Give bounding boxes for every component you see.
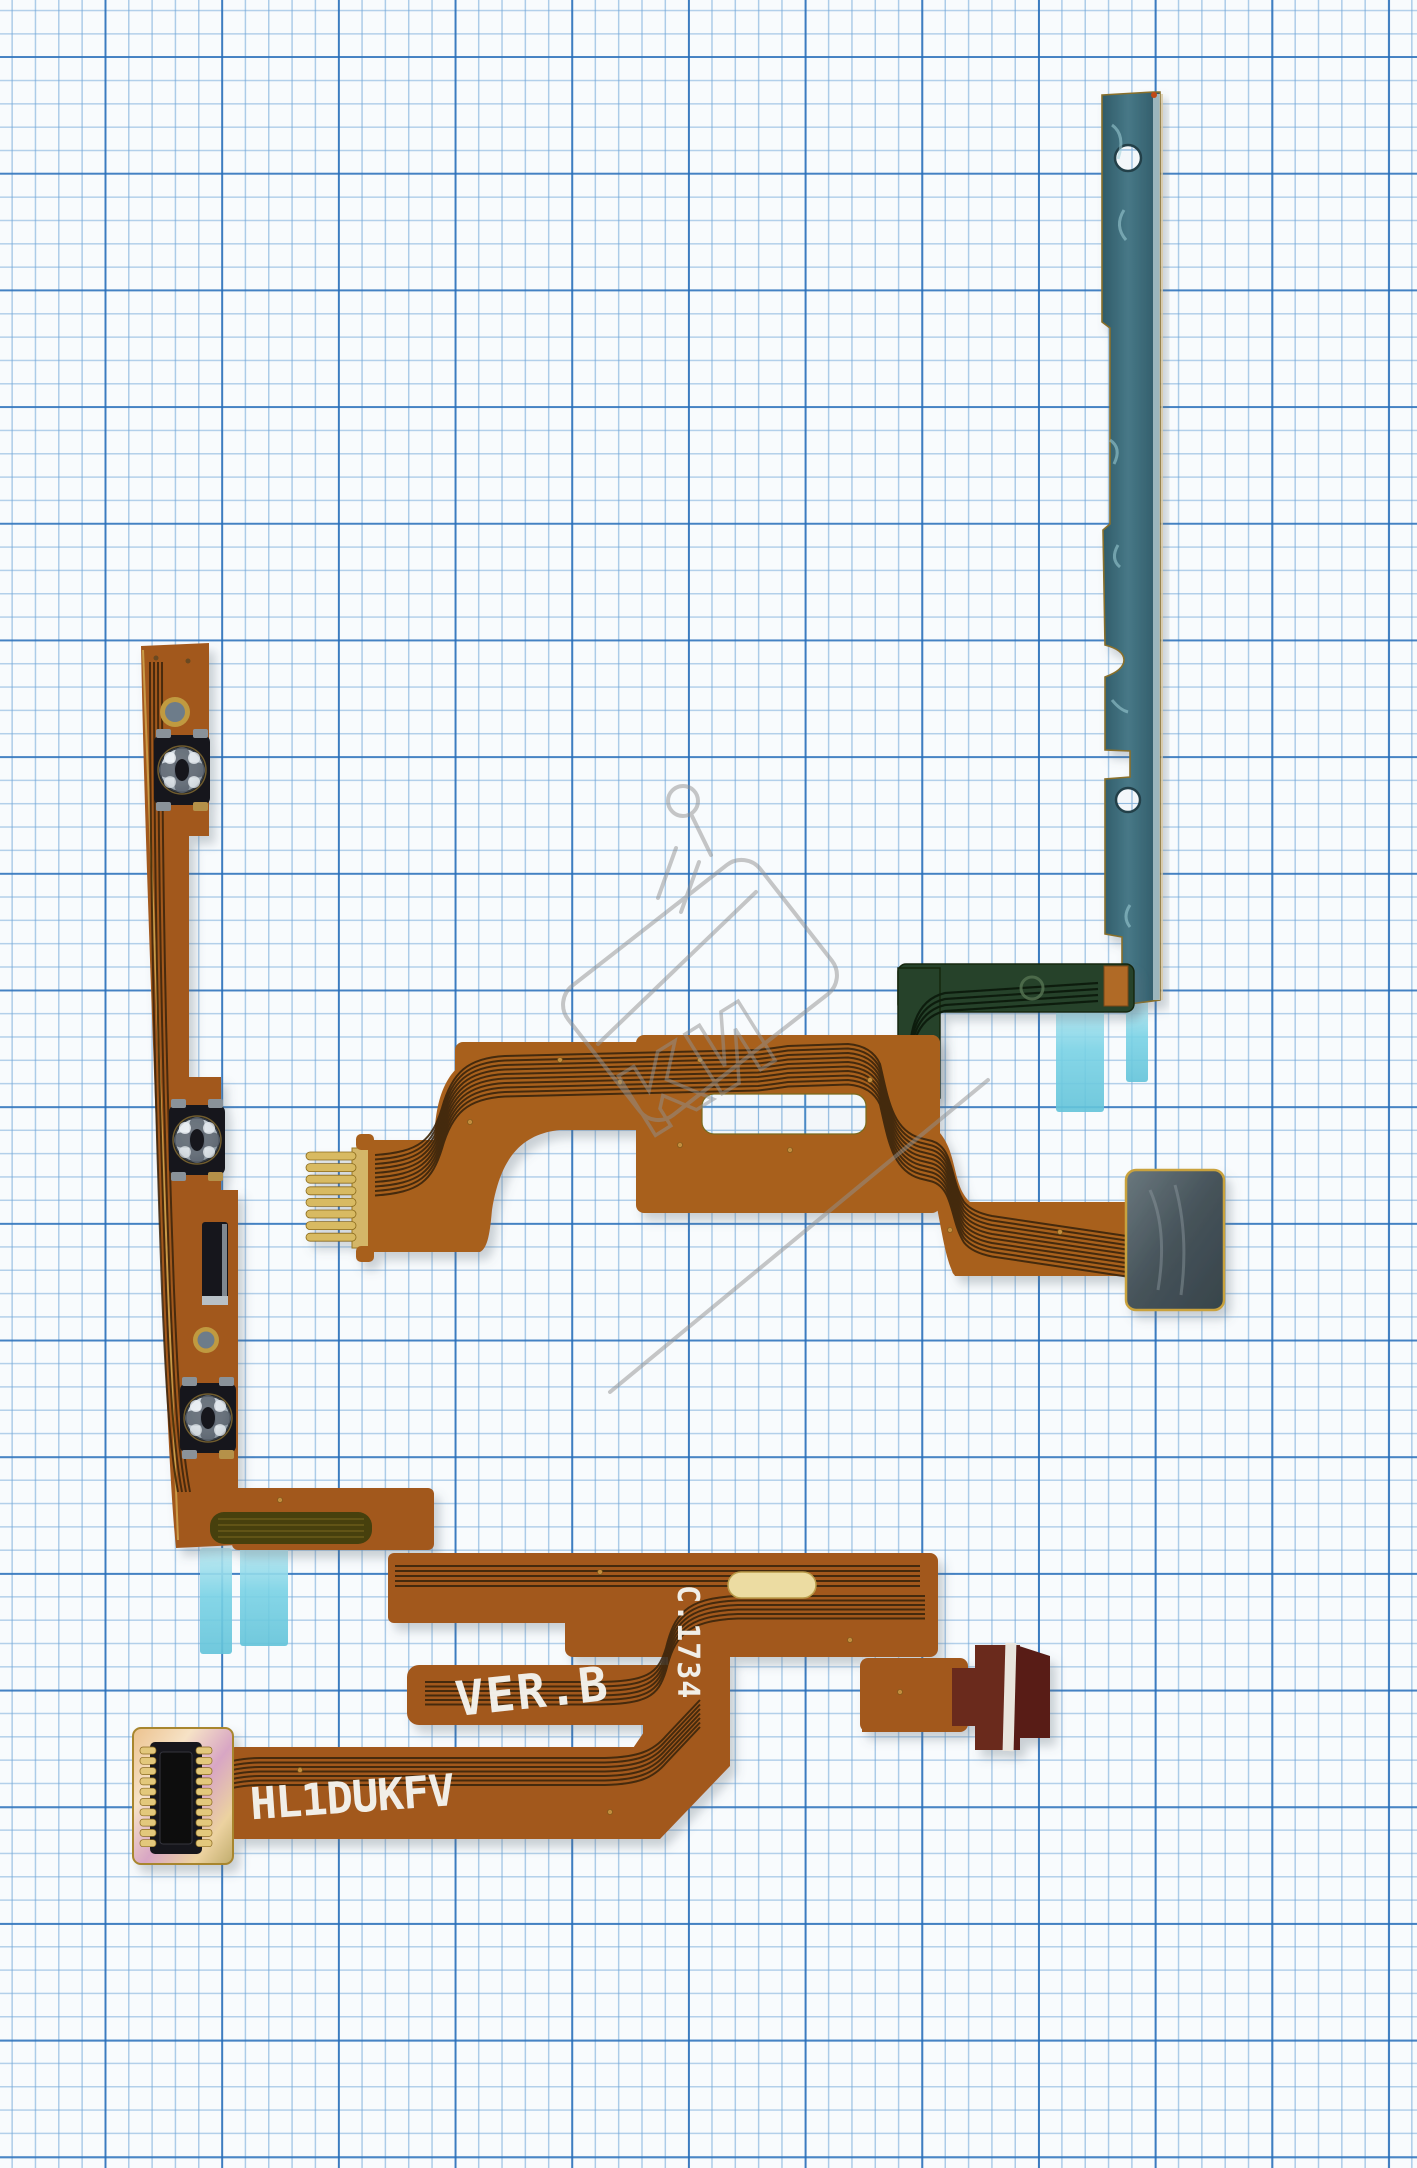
bracket-body bbox=[1102, 92, 1160, 1005]
component-slot bbox=[202, 1222, 228, 1305]
blue-tape-strip-left bbox=[200, 1548, 232, 1654]
blue-tape-bracket-small bbox=[1126, 1000, 1148, 1082]
arm-trace-bundle bbox=[210, 1512, 372, 1544]
watermark-pin-circle bbox=[668, 786, 698, 816]
flex-cable-photo: HL1DUKFV VER.B C.1734 bbox=[0, 0, 1417, 2168]
screw-hole-mid bbox=[198, 1332, 215, 1349]
strip-speck-1 bbox=[154, 656, 159, 661]
end-connector-tab bbox=[952, 1643, 1050, 1751]
blue-tape-strip-right bbox=[240, 1546, 288, 1646]
copper-joint-to-bracket bbox=[1104, 966, 1128, 1006]
bracket-red-dot bbox=[1151, 92, 1157, 98]
side-button-volume-up bbox=[169, 1099, 225, 1181]
screw-hole-top bbox=[165, 702, 185, 722]
metal-bracket bbox=[1102, 92, 1162, 1005]
bracket-screw-hole-bottom bbox=[1116, 788, 1140, 812]
marking-batch: C.1734 bbox=[670, 1585, 705, 1699]
side-button-power bbox=[154, 729, 210, 811]
bracket-edge-highlight bbox=[1153, 94, 1160, 1000]
side-button-volume-down bbox=[180, 1377, 236, 1459]
volume-flex-body bbox=[141, 643, 968, 1839]
blue-tape-bracket-large bbox=[1056, 1000, 1104, 1112]
gold-stiffener-pad bbox=[728, 1572, 816, 1598]
watermark-pin-stem bbox=[691, 814, 711, 855]
board-connector bbox=[133, 1728, 233, 1864]
shielded-sensor-pad bbox=[1126, 1170, 1224, 1310]
gold-finger-connector bbox=[306, 1148, 374, 1248]
watermark-stroke-1 bbox=[658, 848, 676, 898]
volume-flex-cable: HL1DUKFV VER.B C.1734 bbox=[133, 643, 1050, 1864]
strip-speck-2 bbox=[186, 659, 191, 664]
